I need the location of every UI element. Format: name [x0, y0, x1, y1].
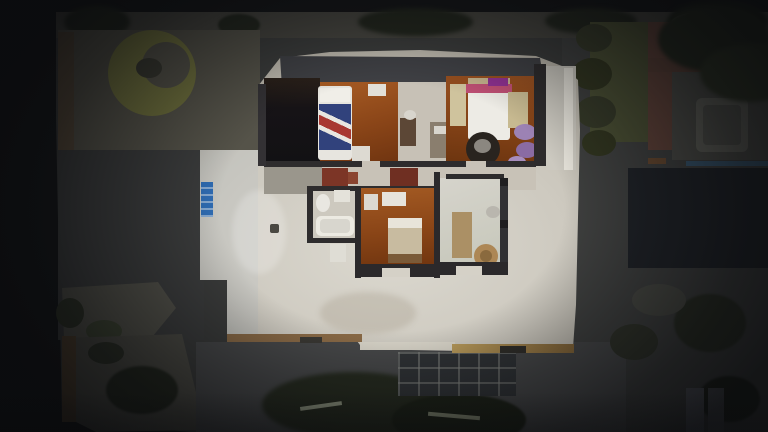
scan-viewer-viewport[interactable]: [0, 0, 768, 432]
vignette: [0, 0, 768, 432]
bottom-shade: [0, 392, 768, 432]
scene-canvas[interactable]: [0, 0, 768, 432]
